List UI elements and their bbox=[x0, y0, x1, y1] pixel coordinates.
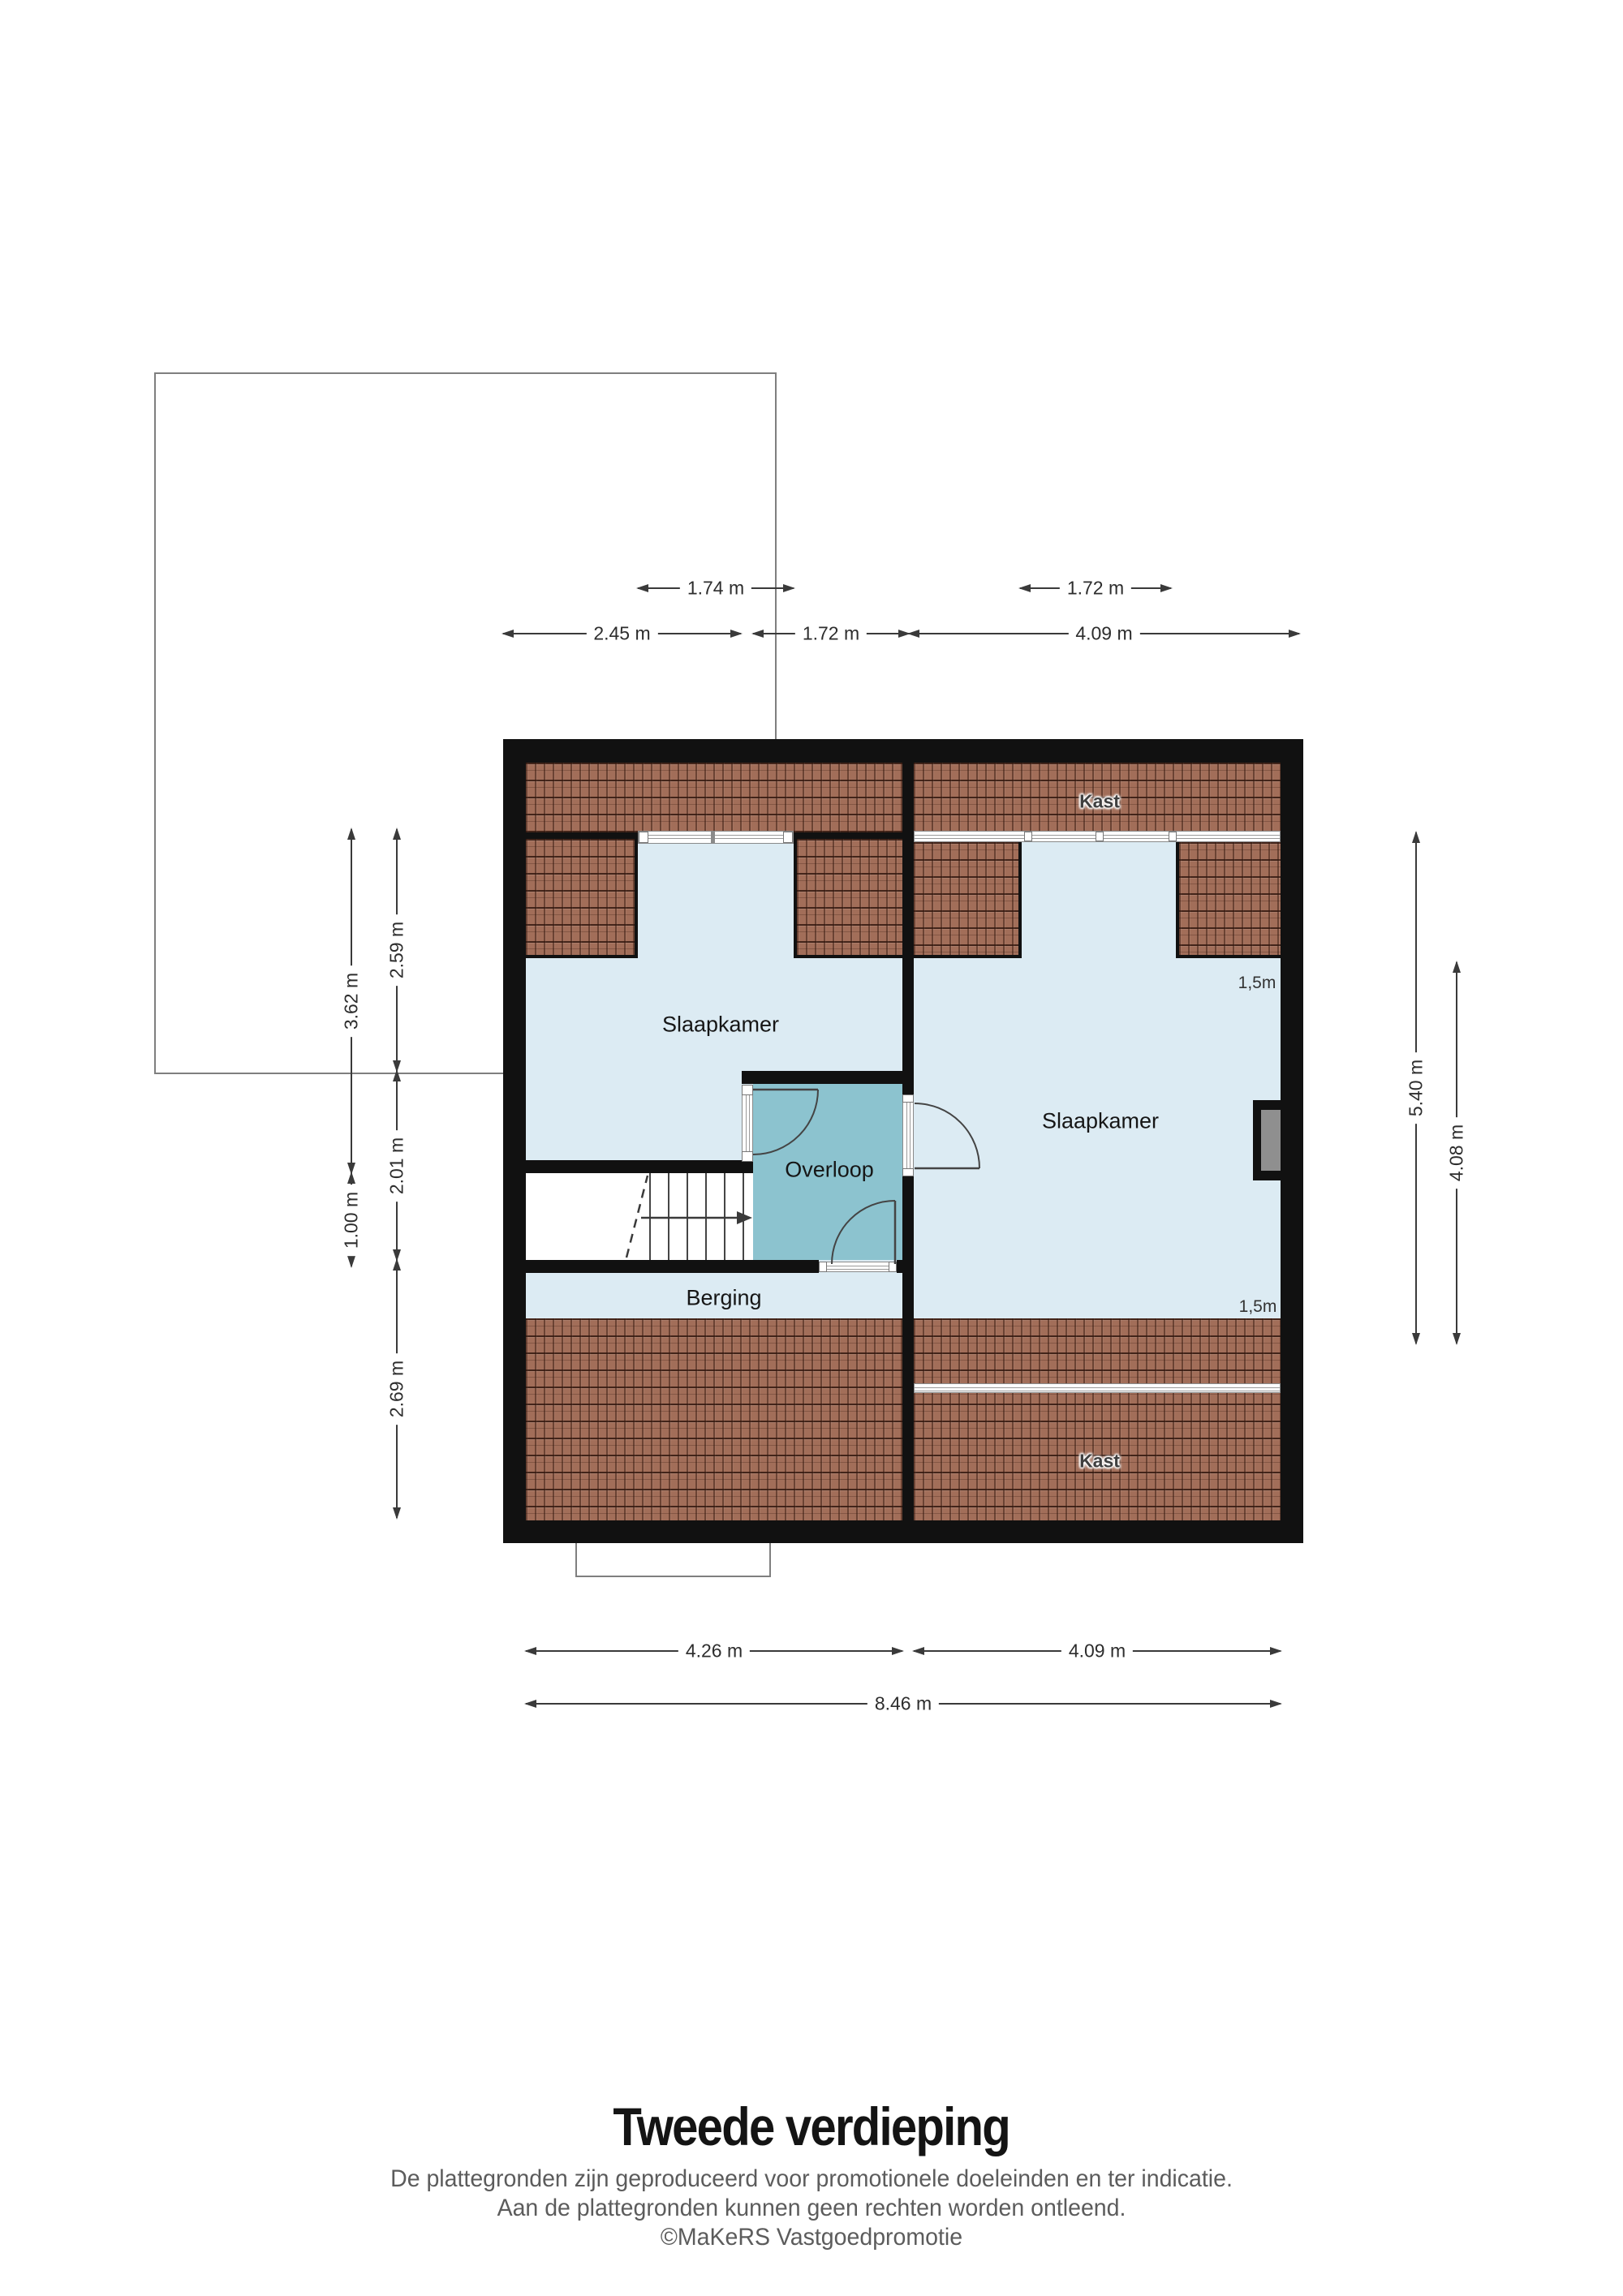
floor-title-text: Tweede verdieping bbox=[613, 2096, 1010, 2157]
dimension-label: 4.09 m bbox=[1068, 623, 1139, 645]
headroom-label-top: 1,5m bbox=[1238, 974, 1276, 993]
dimension-left-outer-lower: 1.00 m bbox=[351, 1173, 352, 1266]
plan-linework bbox=[503, 739, 1303, 1543]
room-label-storage: Berging bbox=[686, 1286, 761, 1311]
floor-title: Tweede verdieping bbox=[0, 2096, 1623, 2157]
dimension-top-left: 2.45 m bbox=[503, 633, 741, 634]
closet-label-top: Kast bbox=[1079, 791, 1120, 813]
disclaimer-line-3: ©MaKeRS Vastgoedpromotie bbox=[41, 2223, 1582, 2252]
disclaimer-line-1: De plattegronden zijn geproduceerd voor … bbox=[41, 2165, 1582, 2194]
floorplan: Slaapkamer Slaapkamer Overloop Berging K… bbox=[503, 739, 1303, 1543]
lower-floor-outline-dormer bbox=[575, 1538, 771, 1577]
dimension-label: 2.59 m bbox=[386, 914, 408, 986]
dimension-top-dormer-right: 1.72 m bbox=[1020, 587, 1171, 589]
door-swing-west bbox=[753, 1090, 818, 1154]
dimension-label: 1.72 m bbox=[795, 623, 867, 645]
dimension-label: 4.09 m bbox=[1061, 1640, 1133, 1662]
stair-walkline-dashed bbox=[626, 1176, 648, 1258]
headroom-label-bottom: 1,5m bbox=[1239, 1297, 1277, 1317]
stair-direction-arrow bbox=[737, 1211, 752, 1224]
disclaimer-line-2: Aan de plattegronden kunnen geen rechten… bbox=[41, 2194, 1582, 2223]
dimension-right-inner: 4.08 m bbox=[1456, 962, 1457, 1344]
dimension-label: 4.08 m bbox=[1446, 1117, 1468, 1189]
dimension-left-inner-mid: 2.01 m bbox=[396, 1071, 398, 1260]
dimension-label: 1.00 m bbox=[341, 1184, 363, 1255]
dimension-label: 3.62 m bbox=[341, 965, 363, 1037]
dimension-top-dormer-left: 1.74 m bbox=[638, 587, 794, 589]
dimension-label: 2.69 m bbox=[386, 1353, 408, 1425]
room-label-bedroom-left: Slaapkamer bbox=[662, 1013, 779, 1038]
dimension-right-outer: 5.40 m bbox=[1415, 832, 1417, 1344]
dimension-bottom-total: 8.46 m bbox=[526, 1703, 1281, 1705]
disclaimer: De plattegronden zijn geproduceerd voor … bbox=[41, 2165, 1582, 2252]
dimension-top-mid: 1.72 m bbox=[753, 633, 909, 634]
dimension-label: 4.26 m bbox=[678, 1640, 750, 1662]
dimension-label: 2.01 m bbox=[386, 1129, 408, 1201]
dimension-bottom-right: 4.09 m bbox=[914, 1650, 1281, 1652]
closet-label-bottom: Kast bbox=[1079, 1451, 1120, 1473]
room-label-landing: Overloop bbox=[785, 1158, 874, 1183]
dimension-left-inner-lower: 2.69 m bbox=[396, 1260, 398, 1518]
door-swing-south bbox=[832, 1201, 895, 1264]
dimension-top-right: 4.09 m bbox=[909, 633, 1299, 634]
dimension-label: 1.74 m bbox=[680, 578, 751, 600]
dimension-label: 2.45 m bbox=[586, 623, 657, 645]
dimension-left-inner-upper: 2.59 m bbox=[396, 829, 398, 1071]
door-swing-east bbox=[915, 1103, 979, 1168]
room-label-bedroom-right: Slaapkamer bbox=[1042, 1109, 1159, 1134]
floorplan-page: Slaapkamer Slaapkamer Overloop Berging K… bbox=[0, 0, 1623, 2296]
dimension-left-outer-upper: 3.62 m bbox=[351, 829, 352, 1173]
dimension-label: 8.46 m bbox=[867, 1693, 939, 1715]
dimension-bottom-left: 4.26 m bbox=[526, 1650, 902, 1652]
dimension-label: 1.72 m bbox=[1060, 578, 1131, 600]
dimension-label: 5.40 m bbox=[1406, 1052, 1427, 1124]
